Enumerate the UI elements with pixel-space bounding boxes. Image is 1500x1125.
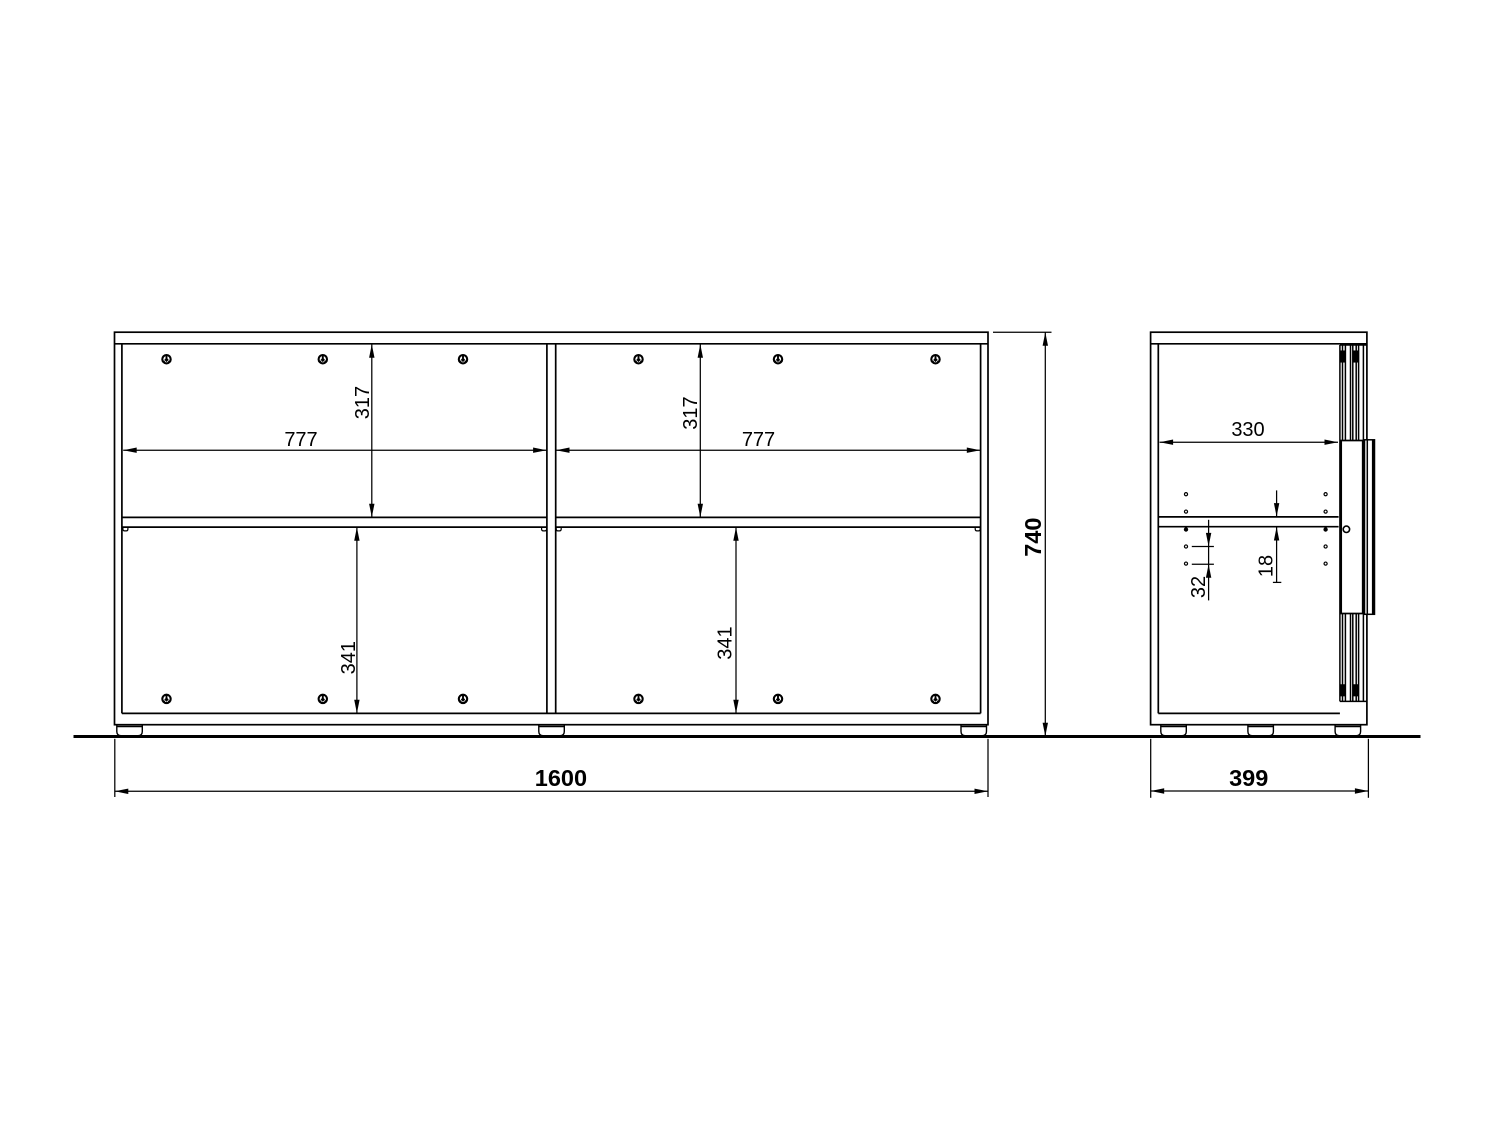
svg-text:317: 317: [680, 396, 702, 429]
svg-text:1600: 1600: [535, 765, 587, 791]
svg-text:330: 330: [1231, 419, 1264, 441]
svg-text:317: 317: [352, 386, 374, 419]
svg-text:341: 341: [338, 641, 360, 674]
svg-text:18: 18: [1256, 555, 1278, 577]
svg-text:399: 399: [1229, 765, 1268, 791]
svg-text:777: 777: [742, 429, 775, 451]
svg-text:341: 341: [714, 626, 736, 659]
svg-text:740: 740: [1020, 518, 1046, 557]
svg-text:777: 777: [284, 429, 317, 451]
svg-text:32: 32: [1188, 576, 1210, 598]
